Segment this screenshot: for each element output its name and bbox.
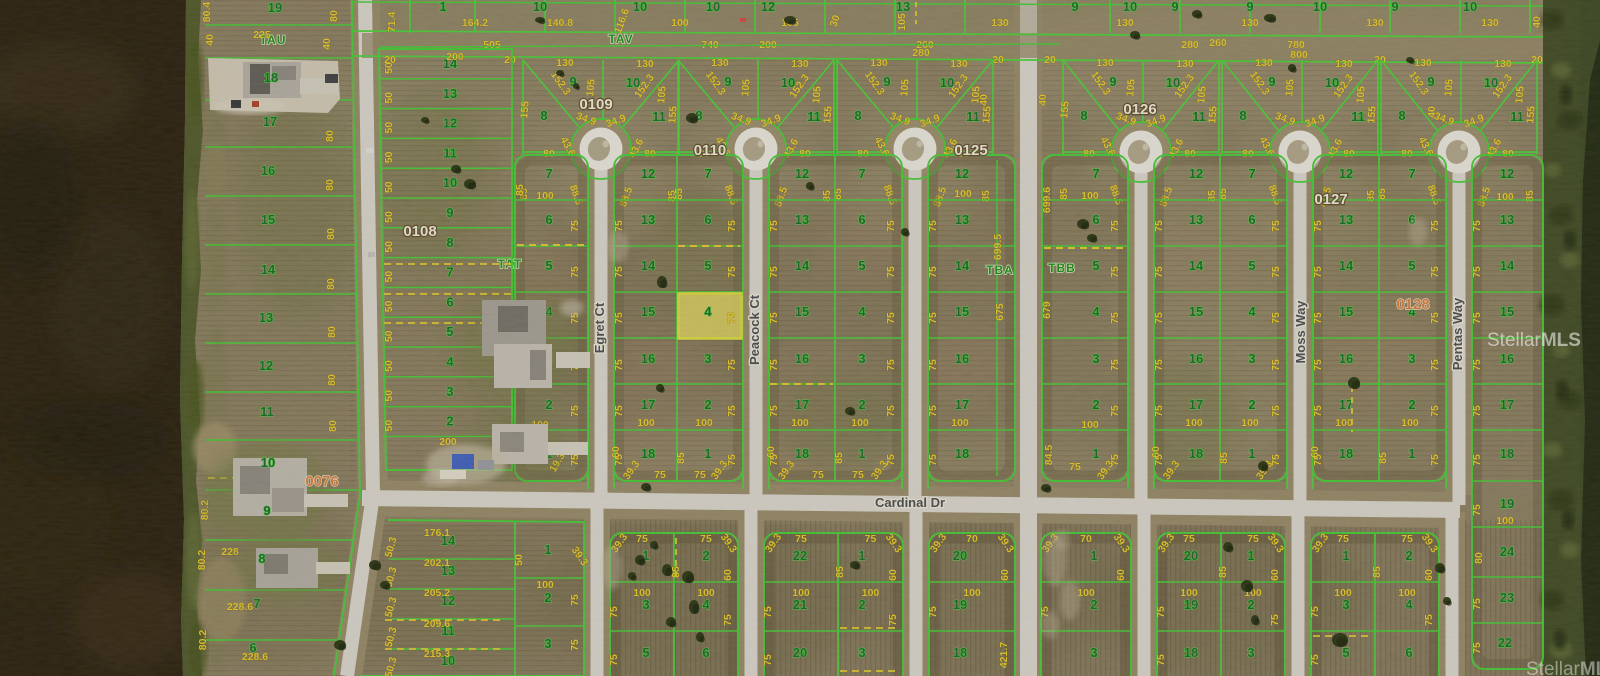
svg-text:StellarMLS: StellarMLS xyxy=(1526,659,1600,676)
svg-text:StellarMLS: StellarMLS xyxy=(1487,330,1581,351)
